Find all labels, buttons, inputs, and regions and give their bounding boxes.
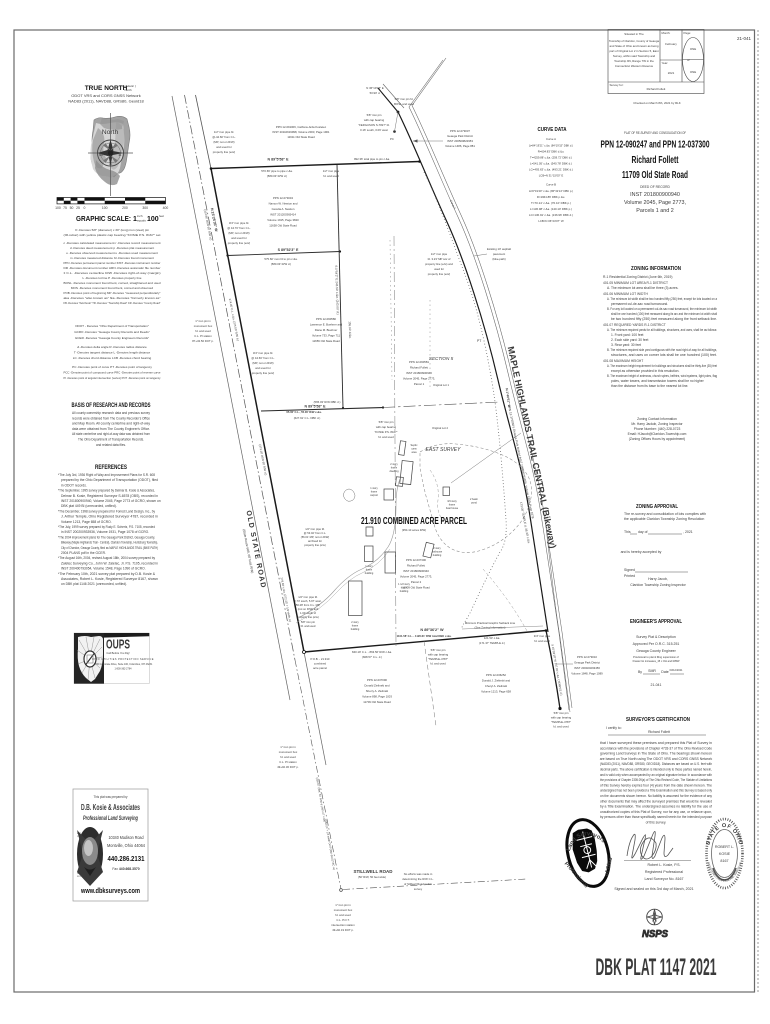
- svg-text:accordance with the provisions: accordance with the provisions of Chapte…: [600, 746, 712, 750]
- svg-text:fd. and used: fd. and used: [378, 435, 394, 439]
- svg-text:LC=493.63' c.&a. (493.21' DBK: LC=493.63' c.&a. (493.21' DBK d.): [529, 168, 573, 172]
- svg-text:Volume 1486, Page 881: Volume 1486, Page 881: [445, 144, 475, 148]
- svg-text:LAND: LAND: [77, 872, 83, 875]
- svg-text:fd. and used: fd. and used: [195, 329, 211, 333]
- svg-text:I certify to:: I certify to:: [606, 726, 622, 730]
- svg-text:North: North: [124, 88, 132, 92]
- svg-text:Harry Jacob,: Harry Jacob,: [648, 577, 668, 581]
- svg-text:Page:: Page:: [684, 31, 692, 35]
- svg-text:A. The maximum height requirem: A. The maximum height requirement for bu…: [607, 364, 717, 368]
- svg-text:5/8" iron pin: 5/8" iron pin: [379, 420, 394, 424]
- svg-text:Robert L. Kosie, P.S.: Robert L. Kosie, P.S.: [647, 863, 680, 867]
- svg-text:archived for: archived for: [308, 539, 322, 543]
- svg-text:S 89°52'3" E: S 89°52'3" E: [278, 248, 299, 252]
- svg-text:INST 201800900940: INST 201800900940: [406, 371, 432, 375]
- svg-text:that I have surveyed these pr: that I have surveyed these premises and …: [600, 741, 712, 745]
- svg-text:121.53' c.&a.: 121.53' c.&a.: [484, 636, 500, 640]
- svg-text:Lawrence E. Buehner and: Lawrence E. Buehner and: [310, 323, 343, 327]
- svg-text:fd. and used: fd. and used: [301, 624, 316, 628]
- svg-text:1" iron pin in: 1" iron pin in: [195, 319, 211, 323]
- svg-text:DR -Denotes document number: DR -Denotes document number ARN -Denotes…: [64, 266, 161, 270]
- svg-text:DBK PLAT 1147 2021: DBK PLAT 1147 2021: [596, 954, 717, 981]
- svg-text:fd. and used: fd. and used: [335, 913, 351, 917]
- svg-text:Existing 10' asphalt: Existing 10' asphalt: [487, 247, 511, 251]
- svg-text:ENGINEER'S APPROVAL: ENGINEER'S APPROVAL: [630, 619, 682, 625]
- svg-text:Zaletec Surveying Co., John W.: Zaletec Surveying Co., John W. Zaletec, …: [61, 561, 158, 565]
- svg-text:monument box: monument box: [194, 324, 213, 328]
- svg-text:C.L. PI station: C.L. PI station: [279, 760, 297, 764]
- svg-text:and is hereby accepted by: and is hereby accepted by: [621, 550, 662, 554]
- svg-text:Curve B: Curve B: [546, 183, 556, 187]
- svg-text:Professional Land Surveying: Professional Land Surveying: [83, 816, 138, 822]
- svg-text:building: building: [351, 628, 360, 631]
- svg-text:intersection station: intersection station: [331, 923, 355, 927]
- svg-text:1. Front yard: 100 feet: 1. Front yard: 100 feet: [611, 333, 644, 337]
- svg-text:PPN 12-091006, Cathrew-Arda Ko: PPN 12-091006, Cathrew-Arda Kosletec: [276, 125, 327, 129]
- svg-text:, 2021: , 2021: [683, 530, 693, 534]
- svg-text:"TEMPLE-4787": "TEMPLE-4787": [428, 657, 448, 661]
- svg-text:Richard Follett: Richard Follett: [407, 564, 425, 568]
- svg-text:5/8" iron pin fd.: 5/8" iron pin fd.: [395, 97, 414, 101]
- svg-text:Namon W. Newton and: Namon W. Newton and: [269, 202, 298, 206]
- svg-text:Donald Zielinski and: Donald Zielinski and: [364, 684, 390, 688]
- svg-text:of: of: [687, 58, 690, 62]
- svg-text:D.B. Kosie & Associates: D.B. Kosie & Associates: [81, 802, 140, 812]
- svg-text:records were obtained from Th: records were obtained from The County Re…: [72, 416, 150, 420]
- svg-text:DEED OF RECORD: DEED OF RECORD: [640, 185, 670, 189]
- svg-text:T -Denotes tangent distance: T -Denotes tangent distance L -Denotes l…: [74, 351, 151, 355]
- svg-text:other documents that may affec: other documents that may affect the surv…: [600, 799, 712, 803]
- svg-text:1" iron pin in: 1" iron pin in: [280, 745, 296, 749]
- svg-text:03/12/2021: 03/12/2021: [670, 668, 684, 672]
- svg-text:21-041: 21-041: [651, 683, 662, 687]
- svg-text:decimal parts. The above cert: decimal parts. The above certification i…: [600, 768, 712, 772]
- svg-text:in ODOT records.: in ODOT records.: [61, 483, 87, 487]
- svg-text:ZONING APPROVAL: ZONING APPROVAL: [636, 504, 678, 510]
- svg-text:3700 Corporate Drive, Suite 10: 3700 Corporate Drive, Suite 100, Columbu…: [94, 663, 153, 666]
- svg-text:Volume 733, Page 711: Volume 733, Page 711: [312, 334, 341, 338]
- svg-text:d -Denotes deed measurement: d -Denotes deed measurement p -Denotes p…: [70, 246, 154, 250]
- svg-text:Date: Date: [661, 670, 668, 674]
- svg-text:LC -Denotes chord distance L: LC -Denotes chord distance LCB -Denotes …: [73, 356, 152, 360]
- svg-text:N 89°36'2" W: N 89°36'2" W: [420, 628, 444, 632]
- svg-text:25: 25: [76, 206, 80, 210]
- svg-text:1101.58' C.L. - 1126.61' R/W t: 1101.58' C.L. - 1126.61' R/W total DBK c…: [397, 634, 452, 638]
- svg-text:75: 75: [63, 206, 67, 210]
- svg-text:GCRO -Denotes "Geauga County R: GCRO -Denotes "Geauga County Records and…: [74, 330, 150, 334]
- svg-text:Frasier lot increases_15 c OH: Frasier lot increases_15 c OH and R/BW: [633, 659, 680, 663]
- svg-text:and used for: and used for: [231, 236, 247, 240]
- svg-text:o -Denotes observed measuremen: o -Denotes observed measurement u -Denot…: [66, 251, 158, 255]
- svg-text:with cap bearing: with cap bearing: [428, 653, 449, 657]
- svg-text:pond: pond: [471, 502, 477, 505]
- svg-text:PCC -Denotes point of compound: PCC -Denotes point of compound curve PRC…: [64, 371, 161, 375]
- svg-text:BOSL and used: BOSL and used: [394, 102, 414, 106]
- svg-text:and used for: and used for: [255, 366, 271, 370]
- svg-text:Township of Claridon, County o: Township of Claridon, County of Geauga: [609, 39, 659, 43]
- svg-text:INST 201800900940, Volume 2045: INST 201800900940, Volume 2045, Page 277…: [61, 499, 161, 503]
- svg-text:N 89°5'58" E: N 89°5'58" E: [305, 405, 327, 409]
- svg-text:100: 100: [55, 206, 61, 210]
- svg-text:¢ C.L. -Denotes centerline R: ¢ C.L. -Denotes centerline R/W -Denotes …: [64, 271, 161, 275]
- svg-text:Month:: Month:: [662, 31, 671, 35]
- svg-text:*The July, 1999 survey prepare: *The July, 1999 survey prepared by Rudy …: [58, 525, 155, 529]
- svg-text:E: E: [118, 152, 121, 157]
- svg-text:data were obtained from The C: data were obtained from The County Engin…: [72, 427, 150, 431]
- svg-text:EAST SURVEY: EAST SURVEY: [426, 447, 462, 453]
- svg-text:5/8" iron pin: 5/8" iron pin: [367, 113, 382, 117]
- svg-text:50.90' d.: 50.90' d.: [370, 91, 381, 95]
- svg-text:This: This: [624, 530, 631, 534]
- svg-text:building: building: [400, 590, 409, 593]
- svg-text:B. The minimum required side y: B. The minimum required side yard contig…: [607, 348, 717, 352]
- svg-text:R=1964.86' DBK p.&u.: R=1964.86' DBK p.&u.: [537, 195, 565, 199]
- svg-text:PPN -Denotes permanent parcel: PPN -Denotes permanent parcel number INS…: [64, 261, 161, 265]
- svg-text:INST 200400293456: INST 200400293456: [574, 666, 600, 670]
- svg-text:Δ -Denotes delta angle R -De: Δ -Denotes delta angle R -Denotes radius…: [77, 345, 147, 349]
- svg-text:undersigned has not been provi: undersigned has not been provided a Titl…: [600, 789, 712, 793]
- svg-text:Cecelia A. Newton: Cecelia A. Newton: [272, 207, 295, 211]
- svg-text:ONE: ONE: [690, 47, 696, 51]
- svg-text:401.05 MINIMUM LOT AREA R-1 DI: 401.05 MINIMUM LOT AREA R-1 DISTRICT: [603, 281, 668, 285]
- svg-text:Richard Follett: Richard Follett: [632, 155, 679, 166]
- svg-text:KOSIE: KOSIE: [719, 852, 731, 856]
- svg-text:(bike-path): (bike-path): [492, 257, 505, 261]
- svg-text:5/8" iron pin: 5/8" iron pin: [301, 620, 316, 624]
- svg-text:REFERENCES: REFERENCES: [95, 464, 128, 471]
- svg-text:property line (e/w): property line (e/w): [213, 150, 235, 154]
- svg-text:Volume 1213, Page 658: Volume 1213, Page 658: [481, 690, 511, 694]
- svg-text:property line (e/w): property line (e/w): [304, 543, 326, 547]
- svg-text:structures, and uses on corner: structures, and uses on corner lots shal…: [611, 353, 717, 357]
- svg-text:ODOT - Denotes "Ohio Departmen: ODOT - Denotes "Ohio Department of Trans…: [75, 324, 149, 328]
- svg-text:O -Denotes 5/8" (diameter) x 3: O -Denotes 5/8" (diameter) x 30" (long) …: [75, 228, 149, 232]
- svg-text:Volume 1915, Page 3820: Volume 1915, Page 3820: [267, 218, 299, 222]
- svg-text:survey: survey: [414, 887, 423, 891]
- svg-text:R=604.83' DBK d.&u.: R=604.83' DBK d.&u.: [538, 150, 565, 154]
- svg-text:2004 PLANS pdf in the GCER.: 2004 PLANS pdf in the GCER.: [61, 551, 106, 555]
- svg-text:All state centerline and right: All state centerline and right-of-way da…: [72, 432, 150, 436]
- svg-text:Delmar B. Kosie, Registered Su: Delmar B. Kosie, Registered Surveyor S-6…: [61, 494, 158, 498]
- svg-text:shall be one hundred (100) fee: shall be one hundred (100) feet measured…: [611, 312, 717, 316]
- svg-text:LCB=N 06°24'07" W: LCB=N 06°24'07" W: [538, 219, 564, 223]
- svg-text:CURVE DATA: CURVE DATA: [538, 127, 567, 133]
- svg-text:part of Original Lot 2 in Sect: part of Original Lot 2 in Section 5, Eas…: [610, 49, 659, 53]
- svg-text:L=541.05' c.&a. (540.78' DBK d: L=541.05' c.&a. (540.78' DBK d.): [530, 162, 572, 166]
- svg-text:fd. and used: fd. and used: [553, 725, 569, 729]
- svg-text:Survey, within said Township a: Survey, within said Township and: [613, 54, 656, 58]
- svg-text:monument box: monument box: [279, 750, 298, 754]
- svg-text:prepared by the Ohio Departmen: prepared by the Ohio Department of Trans…: [61, 478, 158, 482]
- svg-text:PPN 12-037300: PPN 12-037300: [406, 558, 426, 562]
- svg-text:fd. 3.23' MP s/w of: fd. 3.23' MP s/w of: [428, 257, 451, 261]
- svg-text:aka -Denotes "also known as": aka -Denotes "also known as" fka -Denote…: [64, 296, 161, 300]
- svg-text:Geauga Park District: Geauga Park District: [574, 661, 600, 665]
- svg-text:(627.91' C.L. DBK d.): (627.91' C.L. DBK d.): [294, 416, 321, 420]
- svg-text:unauthorized copies of this Pl: unauthorized copies of this Plat of Surv…: [600, 810, 712, 814]
- svg-text:m -Denotes measured distance: m -Denotes measured distance fd -Denotes…: [70, 256, 154, 260]
- svg-text:(MP, not on R/W): (MP, not on R/W): [228, 231, 249, 235]
- svg-text:February: February: [665, 42, 677, 46]
- svg-text:Email: HJacob@Claridon-Townshi: Email: HJacob@Claridon-Township.com: [628, 432, 687, 436]
- svg-text:992.36' total pipe to pin c.&a: 992.36' total pipe to pin c.&a.: [354, 157, 390, 161]
- svg-text:building: building: [365, 572, 374, 575]
- svg-text:PT: PT: [477, 339, 481, 343]
- svg-text:the provisions of Chapter 2305: the provisions of Chapter 2305.09(a) of …: [600, 778, 712, 782]
- svg-text:INST 200500822953: INST 200500822953: [447, 139, 473, 143]
- svg-text:and is valid only when accompa: and is valid only when accompanied by an…: [600, 773, 712, 777]
- svg-text:PC: PC: [390, 137, 394, 141]
- svg-text:Montville, Ohio 44064: Montville, Ohio 44064: [107, 843, 146, 848]
- svg-text:PPN 12-037090: PPN 12-037090: [367, 678, 387, 682]
- svg-text:11709 Old State Road: 11709 Old State Road: [363, 700, 391, 704]
- svg-text:Δ=6°19'40" c.&a. (86°32'14" DB: Δ=6°19'40" c.&a. (86°32'14" DBK p.): [529, 189, 573, 193]
- svg-text:T=4259.88' c.&a. (259.72' DBK: T=4259.88' c.&a. (259.72' DBK d.): [530, 156, 572, 160]
- svg-text:PPN 12-090247 and PPN 12-03730: PPN 12-090247 and PPN 12-037300: [601, 140, 710, 151]
- svg-text:50: 50: [70, 206, 74, 210]
- svg-text:be two hundred fifty (250) fee: be two hundred fifty (250) feet measured…: [611, 317, 717, 321]
- svg-text:Donald J. Zielinski and: Donald J. Zielinski and: [482, 679, 511, 683]
- svg-text:200: 200: [122, 206, 128, 210]
- svg-text:Land Surveyor No. 8167: Land Surveyor No. 8167: [645, 877, 684, 881]
- svg-text:building: building: [433, 554, 442, 557]
- svg-text:Survey Plat & Description: Survey Plat & Description: [636, 635, 676, 639]
- svg-text:property line (e/w): property line (e/w): [297, 615, 319, 619]
- svg-text:PLAT OF RE-SURVEY AND CONSOLID: PLAT OF RE-SURVEY AND CONSOLIDATION OF: [624, 131, 686, 135]
- svg-text:(Zoning Offices Hours by appoi: (Zoning Offices Hours by appointment): [629, 437, 686, 441]
- svg-text:LC=136.91' c.&a. (136.96' DBK: LC=136.91' c.&a. (136.96' DBK d.): [529, 213, 573, 217]
- svg-text:@ 44.70' from C.L.: @ 44.70' from C.L.: [227, 226, 251, 230]
- svg-text:400: 400: [163, 206, 169, 210]
- svg-text:By: By: [638, 670, 642, 674]
- svg-text:permanent cul-de-sac road turn: permanent cul-de-sac road turnaround.: [611, 302, 668, 306]
- svg-text:combined: combined: [314, 662, 327, 666]
- svg-text:inch: inch: [137, 214, 143, 218]
- svg-text:5/8" iron pin: 5/8" iron pin: [554, 711, 569, 715]
- svg-text:@-44.60' from C.L.: @-44.60' from C.L.: [212, 135, 236, 139]
- svg-text:Printed: Printed: [624, 574, 635, 578]
- svg-text:in INST 200200933936, Volume 1: in INST 200200933936, Volume 1931, Page …: [61, 530, 149, 534]
- svg-text:N 36°19'18" E: N 36°19'18" E: [366, 86, 384, 90]
- svg-text:fd. and used: fd. and used: [280, 755, 296, 759]
- svg-text:and Map Room. All county cent: and Map Room. All county centerline and …: [72, 422, 150, 426]
- svg-text:5/8" iron pin: 5/8" iron pin: [431, 648, 446, 652]
- svg-text:INST 201800900940: INST 201800900940: [630, 192, 680, 198]
- svg-text:Volume 898, Page 1003: Volume 898, Page 1003: [362, 695, 392, 699]
- svg-text:1-800-362-2764: 1-800-362-2764: [114, 668, 132, 671]
- svg-text:A. The minimum lot width shall: A. The minimum lot width shall be two hu…: [607, 297, 717, 301]
- svg-text:1/2" iron pipe fd.: 1/2" iron pipe fd.: [305, 527, 325, 531]
- svg-text:INST 20110919998, Volume 2003,: INST 20110919998, Volume 2003, Page 1901: [273, 130, 330, 134]
- svg-text:c -Denotes calculated measurem: c -Denotes calculated measurement r -Den…: [64, 241, 161, 245]
- svg-text:GRAPHIC SCALE:: GRAPHIC SCALE:: [76, 216, 131, 223]
- svg-text:City of Chardon, Geauga County: City of Chardon, Geauga County, filed as…: [61, 546, 158, 550]
- svg-text:T=70.14' c.&a. (70.10' DBK p.): T=70.14' c.&a. (70.10' DBK p.): [531, 201, 571, 205]
- svg-text:No efforts was made in: No efforts was made in: [404, 872, 433, 876]
- svg-text:Registered Professional: Registered Professional: [645, 870, 683, 874]
- svg-text:(NAD83 (2011), NAVD88, GRS80,: (NAD83 (2011), NAVD88, GRS80, GEOID18). …: [600, 762, 712, 766]
- svg-text:Approved Per O.R.C. 315.251: Approved Per O.R.C. 315.251: [633, 642, 680, 646]
- svg-text:(See Zoning Information): (See Zoning Information): [475, 626, 506, 630]
- svg-text:(954.10 acres R/W): (954.10 acres R/W): [402, 528, 426, 532]
- svg-text:PPN 12-079037: PPN 12-079037: [450, 129, 470, 133]
- svg-text:Volume 2045, Page 2773,: Volume 2045, Page 2773,: [400, 575, 432, 579]
- svg-text:Provisional to plat & filing s: Provisional to plat & filing supervision…: [633, 655, 679, 659]
- svg-text:Diane M. Buehner: Diane M. Buehner: [315, 328, 338, 332]
- svg-text:401.06 MINIMUM LOT WIDTH: 401.06 MINIMUM LOT WIDTH: [603, 292, 648, 296]
- svg-text:day of: day of: [638, 530, 648, 534]
- svg-text:STILLWELL ROAD: STILLWELL ROAD: [354, 869, 393, 874]
- svg-text:SURVEYOR'S CERTIFICATION: SURVEYOR'S CERTIFICATION: [626, 717, 690, 723]
- svg-text:INST 201200365414: INST 201200365414: [270, 213, 296, 217]
- svg-text:the applicable Claridon Townsh: the applicable Claridon Township Zoning …: [624, 517, 704, 521]
- svg-text:S: S: [109, 161, 112, 166]
- svg-text:*The February 10th, 2021 surve: *The February 10th, 2021 survey plat pre…: [58, 572, 156, 576]
- svg-text:on DBK plat 1146 2021 (unrecor: on DBK plat 1146 2021 (unrecorded, unfil…: [61, 582, 127, 586]
- svg-text:(171.37' TEMPLE d.): (171.37' TEMPLE d.): [479, 641, 505, 645]
- svg-text:Connecticut Western Reserve: Connecticut Western Reserve: [615, 64, 654, 68]
- svg-text:DBK plat 449 BI (unrecorded, u: DBK plat 449 BI (unrecorded, unfiled).: [61, 504, 117, 508]
- svg-text:ONE: ONE: [690, 70, 696, 74]
- svg-text:(580.03' R/W d.): (580.03' R/W d.): [271, 262, 291, 266]
- svg-text:575.60' mon fd to pin c.&a.: 575.60' mon fd to pin c.&a.: [264, 257, 297, 261]
- svg-text:"TEMPLE-4787": "TEMPLE-4787": [551, 720, 571, 724]
- svg-text:C.L. PI station: C.L. PI station: [194, 334, 212, 338]
- svg-text:A. The minimum lot area shall: A. The minimum lot area shall be three (…: [607, 286, 678, 290]
- svg-text:(IR-rebar) with yellow plastic: (IR-rebar) with yellow plastic cap beari…: [64, 233, 161, 237]
- svg-text:1/2" iron pipe: 1/2" iron pipe: [431, 252, 448, 256]
- svg-text:B. The maximum height of anten: B. The maximum height of antennas, churc…: [607, 374, 717, 378]
- svg-text:(56.01' MP, not on R/W): (56.01' MP, not on R/W): [301, 535, 329, 539]
- svg-text:INST 201800900940: INST 201800900940: [403, 569, 429, 573]
- svg-text:Township 9N, Range 7W in the: Township 9N, Range 7W in the: [614, 59, 654, 63]
- svg-text:11658 Old State Road: 11658 Old State Road: [269, 224, 297, 228]
- svg-text:11611 Old State Road: 11611 Old State Road: [287, 135, 315, 139]
- svg-text:2021: 2021: [668, 71, 675, 75]
- svg-text:P.O.B. - 21.910: P.O.B. - 21.910: [311, 657, 330, 661]
- svg-text:Cheryl A. Zielinski: Cheryl A. Zielinski: [485, 684, 508, 688]
- svg-text:FB -Denotes "field book" TR -: FB -Denotes "field book" TR -Denotes "To…: [64, 301, 161, 305]
- svg-text:ODOT VRS and CORS GNSS Network: ODOT VRS and CORS GNSS Network: [71, 93, 141, 98]
- svg-text:2. Each side yard: 30 feet: 2. Each side yard: 30 feet: [611, 338, 648, 342]
- svg-text:1/2" iron pipe fd.: 1/2" iron pipe fd.: [298, 595, 318, 599]
- svg-text:Original Lot 2: Original Lot 2: [432, 426, 448, 430]
- svg-text:Volume 2045, Page 2773,: Volume 2045, Page 2773,: [624, 200, 687, 206]
- svg-text:Call Before You Dig!: Call Before You Dig!: [106, 651, 129, 655]
- svg-text:0.16' south, 0.06' west: 0.16' south, 0.06' west: [360, 128, 388, 132]
- svg-text:equals: equals: [137, 219, 146, 223]
- svg-text:N 89°5'58" E: N 89°5'58" E: [268, 158, 290, 162]
- svg-text:by persons other than those sp: by persons other than those specifically…: [600, 815, 712, 819]
- svg-text:570.66' pipe to pipe c.&a.: 570.66' pipe to pipe c.&a.: [261, 169, 293, 173]
- svg-text:440.286.2131: 440.286.2131: [108, 854, 146, 863]
- svg-text:Minimum Practical Graphic Setb: Minimum Practical Graphic Setback Line: [465, 621, 516, 625]
- svg-text:Richard Follett: Richard Follett: [647, 87, 666, 91]
- svg-text:11656 Old State Road: 11656 Old State Road: [312, 339, 340, 343]
- svg-text:21-041: 21-041: [737, 36, 752, 41]
- svg-text:Claridon Township Zoning Inspe: Claridon Township Zoning Inspector: [630, 583, 686, 587]
- svg-text:The re-survey and consolidati: The re-survey and consolidation of lots …: [624, 512, 706, 516]
- svg-text:Bikeway (Maple Highlands Trail: Bikeway (Maple Highlands Trail - Central…: [61, 541, 158, 545]
- svg-text:SECTION 5: SECTION 5: [429, 356, 454, 361]
- svg-text:Volume 1213, Page 658 of GCRO.: Volume 1213, Page 658 of GCRO.: [61, 520, 112, 524]
- svg-text:SMR: SMR: [648, 669, 656, 673]
- svg-text:R-1 Residential Zoning Distric: R-1 Residential Zoning District (June 6t…: [603, 275, 672, 279]
- svg-text:of this Survey hereby expires: of this Survey hereby expires four (4) y…: [600, 783, 712, 787]
- svg-text:Volume 2045, Page 2773,: Volume 2045, Page 2773,: [403, 377, 435, 381]
- svg-text:PPN 12-036252: PPN 12-036252: [486, 673, 506, 677]
- svg-text:Fax 440.668.3570: Fax 440.668.3570: [112, 867, 139, 871]
- svg-text:(not on R/W) and: (not on R/W) and: [298, 607, 319, 611]
- svg-text:N: N: [109, 143, 112, 148]
- svg-text:Phone Number: (440) 228-0723: Phone Number: (440) 228-0723: [634, 427, 681, 431]
- svg-text:OUPS: OUPS: [106, 638, 130, 652]
- svg-text:area: area: [411, 451, 417, 454]
- svg-text:PPN 12-079010: PPN 12-079010: [577, 655, 597, 659]
- svg-text:PPN 12-090580: PPN 12-090580: [316, 317, 336, 321]
- svg-text:Volume 1848, Page 1089: Volume 1848, Page 1089: [571, 672, 603, 676]
- svg-text:acre parcel: acre parcel: [313, 666, 327, 670]
- svg-text:"FERGUSON S-7827" fd.: "FERGUSON S-7827" fd.: [358, 123, 390, 127]
- svg-text:C.L. P.O.T.: C.L. P.O.T.: [336, 918, 350, 922]
- svg-text:GCER -Denotes "Geauga County E: GCER -Denotes "Geauga County Engineers R…: [75, 336, 149, 340]
- svg-text:3/4" iron pipe fd.: 3/4" iron pipe fd.: [253, 351, 273, 355]
- svg-text:POB -Denotes point of beginnin: POB -Denotes point of beginning MP -Deno…: [64, 291, 161, 295]
- svg-text:L -Denotes lot line P -Denot: L -Denotes lot line P -Denotes property …: [83, 276, 142, 280]
- svg-text:100: 100: [147, 216, 159, 223]
- svg-text:NAD83 (2011), NAVD88, GRS80, G: NAD83 (2011), NAVD88, GRS80, Geoid18: [68, 99, 144, 104]
- svg-text:with cap bearing: with cap bearing: [364, 118, 385, 122]
- svg-text:L=136.98' c.&a. (140.10' DBK p: L=136.98' c.&a. (140.10' DBK p.): [530, 207, 572, 211]
- svg-text:www.dbksurveys.com: www.dbksurveys.com: [80, 886, 140, 895]
- svg-text:(MP, not on R/W): (MP, not on R/W): [213, 140, 234, 144]
- svg-text:property line (e/w) and: property line (e/w) and: [425, 262, 453, 266]
- svg-text:and used for: and used for: [216, 145, 232, 149]
- svg-text:3/4" iron pipe: 3/4" iron pipe: [534, 634, 551, 638]
- svg-text:B. For any lot located on a pe: B. For any lot located on a permanent cu…: [607, 307, 717, 311]
- svg-text:100: 100: [102, 206, 108, 210]
- svg-text:NSPS: NSPS: [642, 929, 668, 940]
- svg-text:(580.03' R/W d.): (580.03' R/W d.): [267, 174, 287, 178]
- svg-text:49+92.19 DOT p.: 49+92.19 DOT p.: [332, 928, 354, 932]
- svg-text:Parcels 1 and 2: Parcels 1 and 2: [636, 208, 673, 214]
- svg-text:8167: 8167: [720, 859, 728, 863]
- svg-text:Parcel 2: Parcel 2: [411, 580, 422, 584]
- svg-text:3/4" iron pipe fd.: 3/4" iron pipe fd.: [229, 221, 249, 225]
- svg-text:property line (e/w): property line (e/w): [428, 272, 450, 276]
- svg-text:Survey for:: Survey for:: [610, 83, 624, 87]
- svg-text:and related data files.: and related data files.: [96, 443, 126, 447]
- svg-text:North: North: [102, 129, 119, 136]
- svg-text:Sherry A. Zielinski: Sherry A. Zielinski: [366, 689, 389, 693]
- svg-text:fd. and used: fd. and used: [534, 639, 550, 643]
- svg-text:56.28' from C.L. MP,: 56.28' from C.L. MP,: [296, 603, 320, 607]
- svg-text:BOSL -Denotes monument found b: BOSL -Denotes monument found bent, corne…: [64, 281, 161, 285]
- svg-text:This plat was prepared by: This plat was prepared by: [94, 795, 128, 799]
- svg-text:OHIO UTILITIES PROTECTION SERV: OHIO UTILITIES PROTECTION SERVICE: [92, 658, 154, 661]
- svg-text:401.08 MAXIMUM HEIGHT: 401.08 MAXIMUM HEIGHT: [603, 359, 643, 363]
- svg-text:840.19' C.L. - 863.56' R/W c.&: 840.19' C.L. - 863.56' R/W c.&a.: [352, 650, 392, 654]
- svg-text:*The 2004 improvement plans fo: *The 2004 improvement plans for The Geau…: [58, 535, 155, 539]
- svg-text:property line (e/w): property line (e/w): [252, 371, 274, 375]
- svg-text:governing Land Surveys in The: governing Land Surveys in The State of O…: [600, 752, 712, 756]
- svg-text:BASIS OF RESEARCH AND RECORDS: BASIS OF RESEARCH AND RECORDS: [72, 402, 151, 409]
- svg-text:*The December, 1998 survey pre: *The December, 1998 survey prepared for …: [58, 509, 155, 513]
- svg-text:property line (e/w): property line (e/w): [228, 241, 250, 245]
- svg-text:PPN 12-073043: PPN 12-073043: [273, 196, 293, 200]
- svg-text:ZONING INFORMATION: ZONING INFORMATION: [631, 266, 681, 272]
- svg-text:Associates, Robert L. Kosie, R: Associates, Robert L. Kosie, Registered …: [61, 577, 158, 581]
